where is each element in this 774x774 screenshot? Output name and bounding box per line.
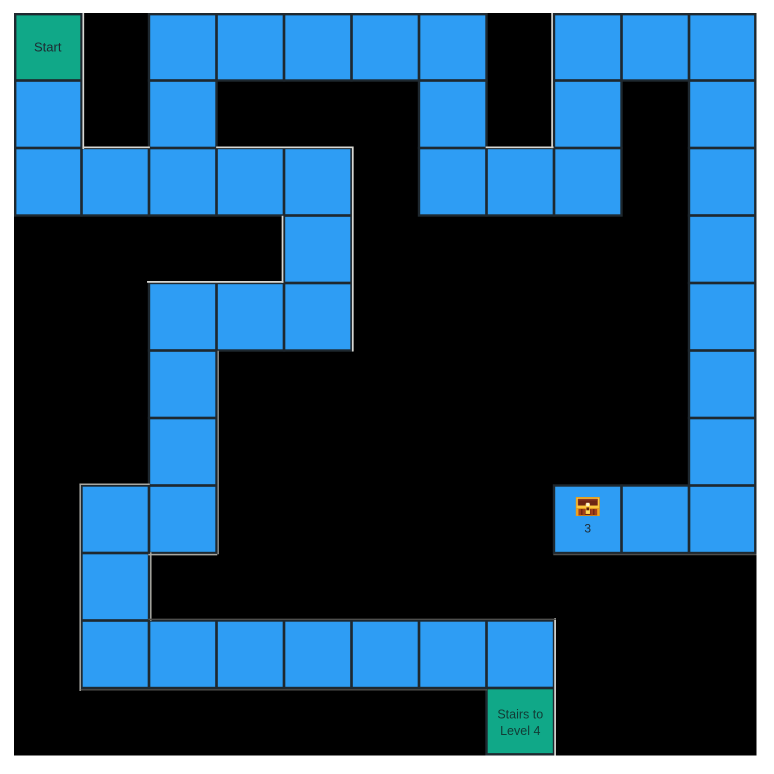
svg-text:Stairs to: Stairs to: [497, 708, 543, 722]
svg-text:Start: Start: [34, 39, 62, 54]
svg-text:3: 3: [584, 522, 591, 536]
svg-text:Level 4: Level 4: [500, 724, 540, 738]
